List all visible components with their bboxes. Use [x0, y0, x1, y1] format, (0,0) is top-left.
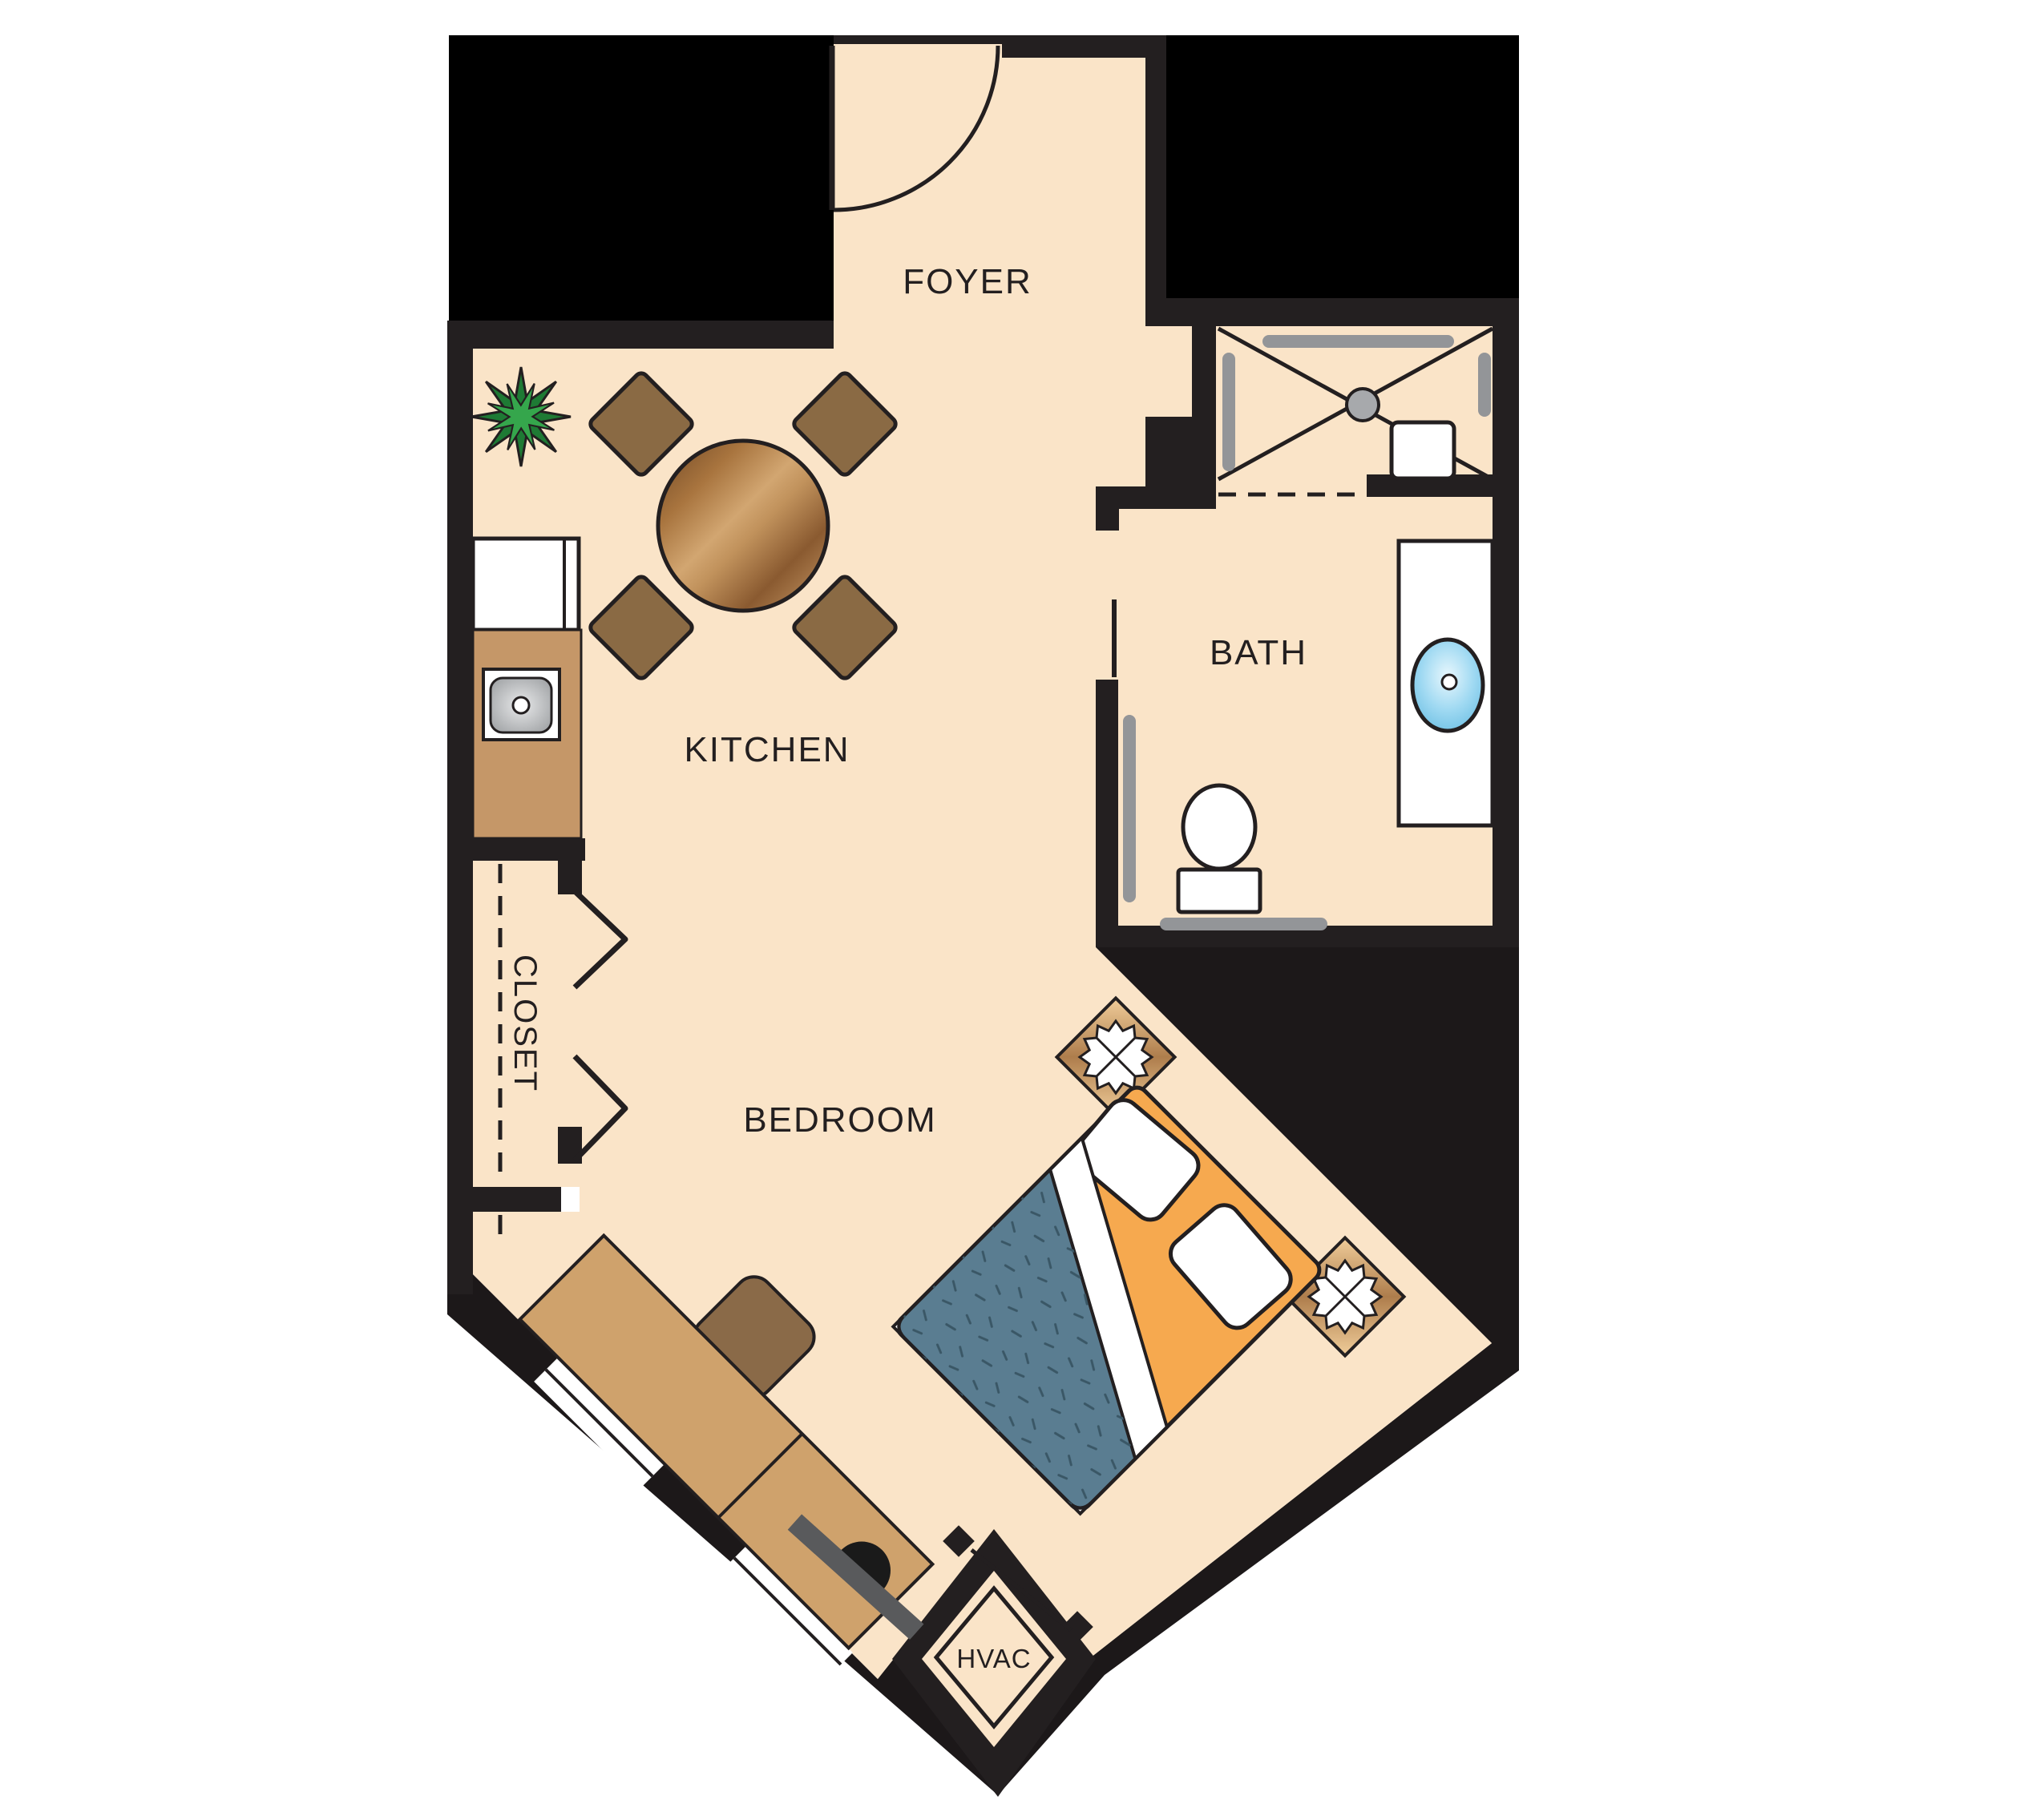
left-exterior-wall — [447, 349, 473, 1294]
bath-top-wall — [1145, 298, 1519, 326]
bath-label: BATH — [1210, 633, 1307, 672]
closet-door-stub-top — [558, 856, 582, 894]
toilet-icon — [1178, 785, 1260, 912]
bath-left-wall-lower — [1096, 680, 1118, 926]
shower-bottom-left-wall — [1096, 486, 1216, 509]
shower-drain-icon — [1347, 389, 1379, 421]
dining-table-icon — [658, 441, 828, 611]
closet-label: CLOSET — [507, 954, 543, 1092]
potted-plant-icon — [471, 367, 571, 466]
vanity-sink-icon — [1399, 541, 1493, 825]
shower-seat-icon — [1392, 422, 1454, 478]
shower-left-stub-wall — [1192, 326, 1216, 507]
floorplan-canvas: FOYER KITCHEN BATH BEDROOM CLOSET HVAC — [0, 0, 2044, 1804]
hvac-label: HVAC — [956, 1644, 1031, 1673]
foyer-label: FOYER — [903, 262, 1032, 301]
top-wall-right-of-door — [1002, 35, 1166, 58]
floorplan-svg: FOYER KITCHEN BATH BEDROOM CLOSET HVAC — [0, 0, 2044, 1804]
entry-threshold-wall — [834, 35, 1002, 44]
exterior-void-top-right — [1166, 35, 1519, 298]
bath-door-jamb-upper — [1096, 509, 1119, 531]
bath-right-wall — [1493, 298, 1519, 947]
kitchen-label: KITCHEN — [684, 730, 850, 769]
kitchen-sink-icon — [483, 669, 559, 740]
bedroom-label: BEDROOM — [743, 1100, 936, 1140]
kitchen-top-wall — [447, 321, 834, 349]
exterior-void-top-left — [449, 35, 834, 321]
foyer-right-wall — [1145, 58, 1166, 326]
closet-bottom-wall — [447, 1187, 561, 1212]
